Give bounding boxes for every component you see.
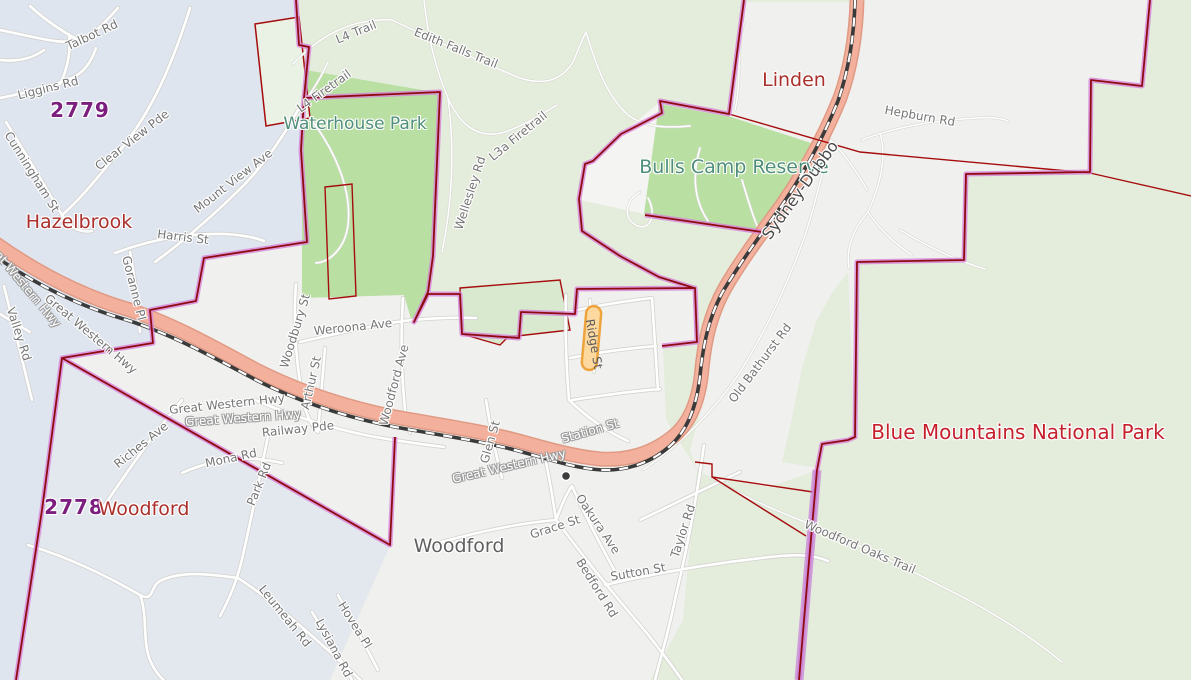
map-canvas[interactable]: Talbot Rd Liggins Rd 2779 Cunningham St … <box>0 0 1191 680</box>
map-graphics <box>0 0 1191 680</box>
waterhouse-park-area <box>302 70 440 322</box>
railway-station-icon[interactable] <box>562 472 571 481</box>
